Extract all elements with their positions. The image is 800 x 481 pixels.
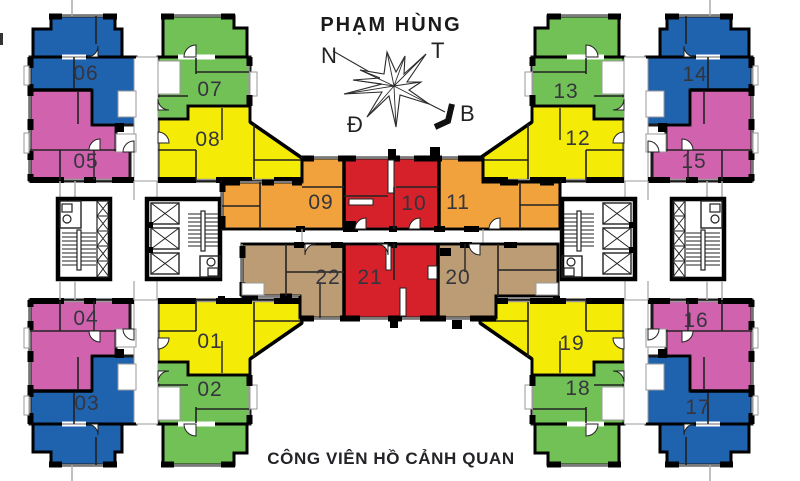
svg-text:06: 06	[73, 62, 98, 85]
svg-text:14: 14	[682, 63, 707, 86]
svg-text:03: 03	[74, 392, 99, 415]
svg-text:17: 17	[685, 396, 710, 419]
svg-text:13: 13	[553, 80, 578, 103]
svg-text:05: 05	[73, 150, 98, 173]
svg-text:09: 09	[308, 191, 333, 214]
svg-text:22: 22	[315, 266, 340, 289]
svg-text:16: 16	[683, 309, 708, 332]
svg-text:PHẠM HÙNG: PHẠM HÙNG	[320, 12, 461, 36]
svg-text:04: 04	[73, 307, 98, 330]
svg-text:19: 19	[559, 332, 584, 355]
svg-text:CÔNG VIÊN HỒ CẢNH QUAN: CÔNG VIÊN HỒ CẢNH QUAN	[267, 449, 514, 468]
svg-text:N: N	[321, 43, 337, 68]
svg-text:T: T	[431, 38, 444, 63]
svg-text:18: 18	[565, 377, 590, 400]
svg-text:02: 02	[197, 378, 222, 401]
svg-text:11: 11	[446, 191, 470, 214]
svg-text:B: B	[460, 101, 475, 126]
svg-text:01: 01	[197, 330, 222, 353]
svg-text:07: 07	[197, 78, 222, 101]
svg-text:12: 12	[565, 127, 590, 150]
svg-text:08: 08	[195, 128, 220, 151]
svg-text:21: 21	[357, 266, 382, 289]
svg-text:Đ: Đ	[347, 112, 363, 137]
svg-text:20: 20	[445, 266, 470, 289]
svg-text:15: 15	[681, 150, 706, 173]
svg-text:10: 10	[401, 192, 426, 215]
